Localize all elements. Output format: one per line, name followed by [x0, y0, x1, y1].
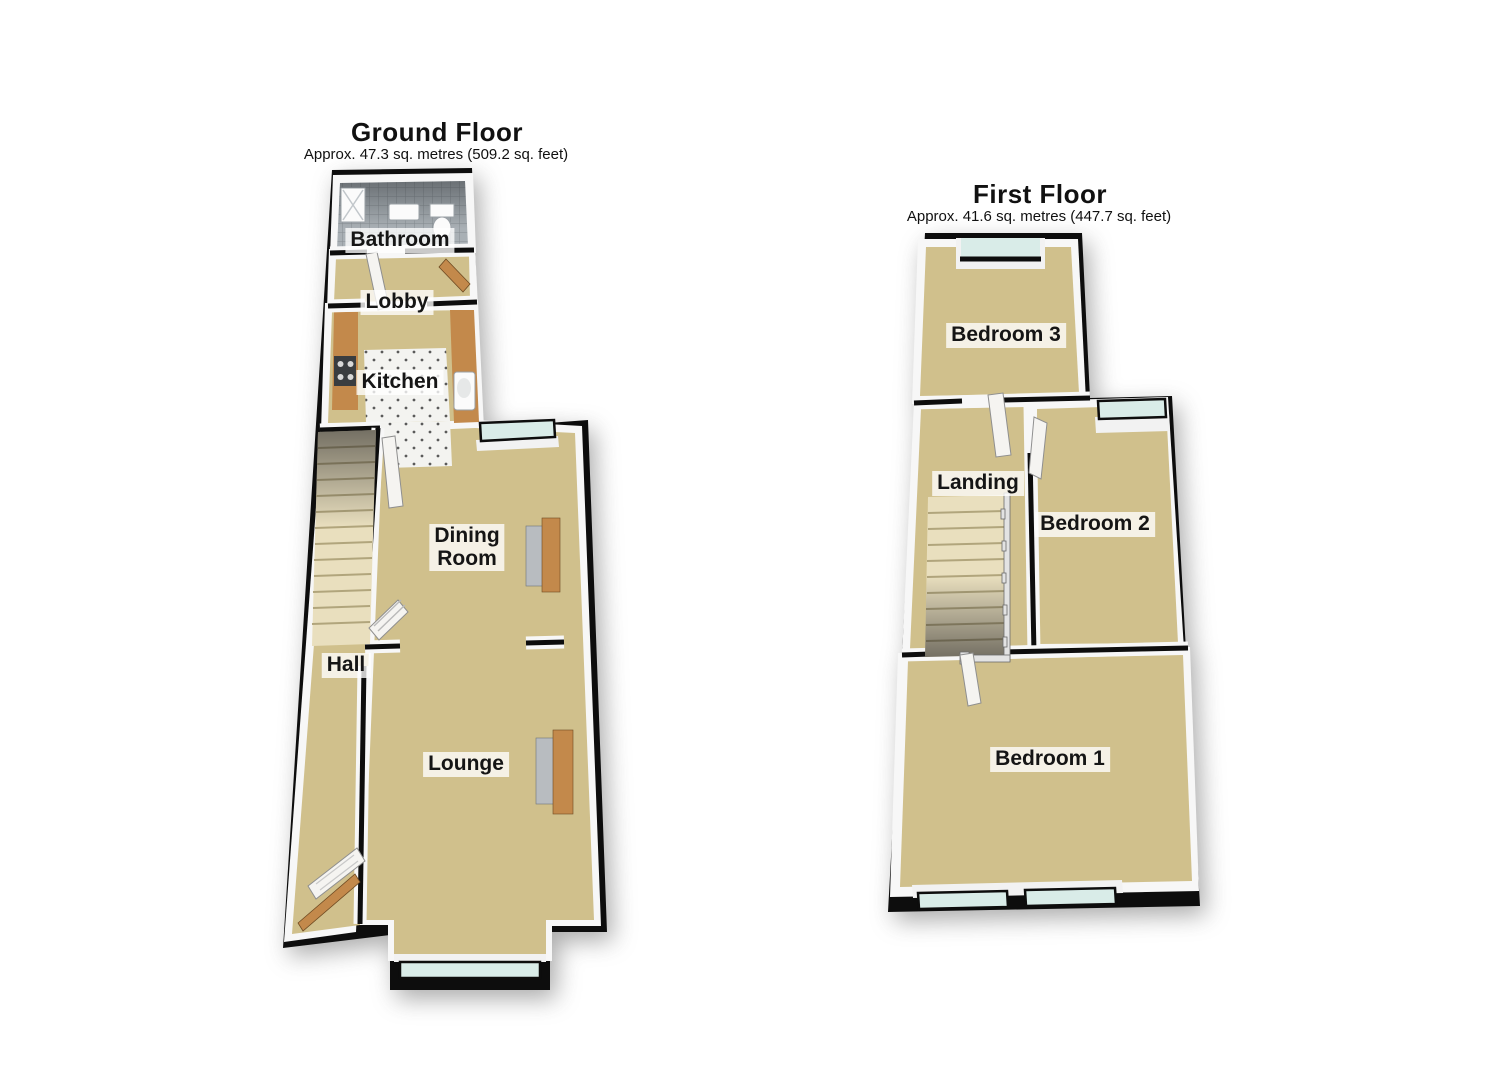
room-label-bedroom1: Bedroom 1 — [990, 747, 1110, 772]
bedroom3-window — [956, 238, 1045, 269]
bathroom-sink — [389, 204, 419, 220]
stairs-shadow — [925, 495, 1007, 657]
first-floor-subtitle: Approx. 41.6 sq. metres (447.7 sq. feet) — [907, 208, 1171, 225]
hob-burner — [338, 374, 344, 380]
ground-stairs — [312, 430, 376, 646]
dining-window — [476, 420, 559, 451]
toilet-cistern — [430, 204, 454, 217]
lounge-fireplace — [536, 730, 573, 814]
hob-burner — [348, 374, 354, 380]
room-label-bathroom: Bathroom — [345, 228, 454, 253]
dining-label-line2: Room — [434, 548, 499, 571]
room-label-bedroom3: Bedroom 3 — [946, 323, 1066, 348]
dining-label-line1: Dining — [434, 525, 499, 548]
bedroom3-floor — [920, 247, 1079, 396]
room-label-kitchen: Kitchen — [356, 370, 443, 395]
dining-fireplace — [526, 518, 560, 592]
hob-burner — [338, 361, 344, 367]
banister-post — [1001, 509, 1005, 519]
room-label-lounge: Lounge — [423, 752, 509, 777]
room-label-bedroom2: Bedroom 2 — [1035, 512, 1155, 537]
ground-floor-title: Ground Floor — [351, 117, 523, 148]
room-label-lobby: Lobby — [361, 290, 434, 315]
room-label-landing: Landing — [932, 471, 1024, 496]
bedroom2-window — [1095, 399, 1170, 433]
wall-b3-landing — [1004, 398, 1090, 400]
banister-post — [1003, 637, 1007, 647]
room-label-dining-room: Dining Room — [429, 524, 504, 571]
wall-kitchen-stairs — [320, 428, 380, 430]
hob-burner — [348, 361, 354, 367]
first-floor-title: First Floor — [973, 179, 1107, 210]
kitchen-sink-basin — [457, 378, 471, 398]
hob — [334, 356, 356, 386]
banister-post — [1002, 541, 1006, 551]
room-label-hall: Hall — [322, 653, 371, 678]
floorplan-canvas: Ground Floor Approx. 47.3 sq. metres (50… — [0, 0, 1485, 1080]
banister-post — [1003, 605, 1007, 615]
ground-floor-plan — [270, 160, 615, 1000]
bay-window — [394, 954, 546, 978]
wall-b3-landing — [914, 401, 962, 403]
stairs-shadow — [312, 430, 376, 646]
first-stairs — [925, 493, 1010, 664]
banister-post — [1002, 573, 1006, 583]
